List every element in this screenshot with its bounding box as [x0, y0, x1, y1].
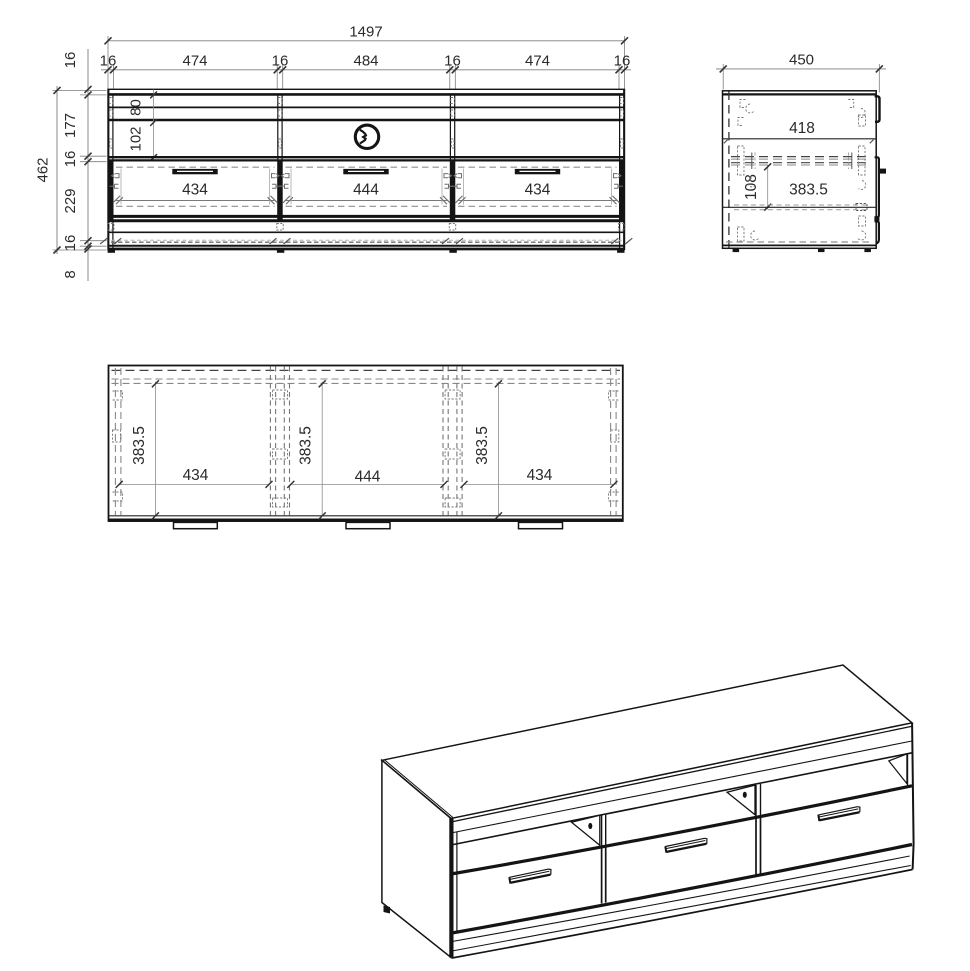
svg-text:434: 434 [525, 182, 551, 199]
svg-text:383.5: 383.5 [474, 426, 491, 465]
svg-text:16: 16 [62, 151, 79, 168]
svg-text:474: 474 [182, 53, 207, 70]
svg-text:8: 8 [62, 270, 79, 278]
svg-text:434: 434 [527, 467, 553, 484]
svg-text:444: 444 [355, 469, 381, 486]
svg-text:474: 474 [525, 53, 550, 70]
svg-text:16: 16 [62, 52, 79, 69]
svg-text:418: 418 [789, 120, 815, 137]
svg-text:80: 80 [128, 99, 145, 116]
svg-text:434: 434 [183, 467, 209, 484]
svg-text:177: 177 [62, 113, 79, 138]
svg-text:16: 16 [444, 53, 461, 70]
svg-text:383.5: 383.5 [789, 182, 828, 199]
svg-text:383.5: 383.5 [131, 426, 148, 465]
svg-text:102: 102 [128, 126, 145, 151]
svg-text:16: 16 [614, 53, 631, 70]
svg-text:484: 484 [353, 53, 378, 70]
svg-text:444: 444 [353, 182, 379, 199]
svg-text:16: 16 [62, 235, 79, 252]
svg-text:229: 229 [62, 188, 79, 213]
svg-text:16: 16 [100, 53, 117, 70]
svg-text:434: 434 [182, 182, 208, 199]
svg-text:462: 462 [35, 157, 52, 182]
svg-text:450: 450 [789, 52, 814, 69]
svg-text:1497: 1497 [349, 24, 382, 41]
svg-text:16: 16 [272, 53, 289, 70]
svg-text:383.5: 383.5 [298, 426, 315, 465]
